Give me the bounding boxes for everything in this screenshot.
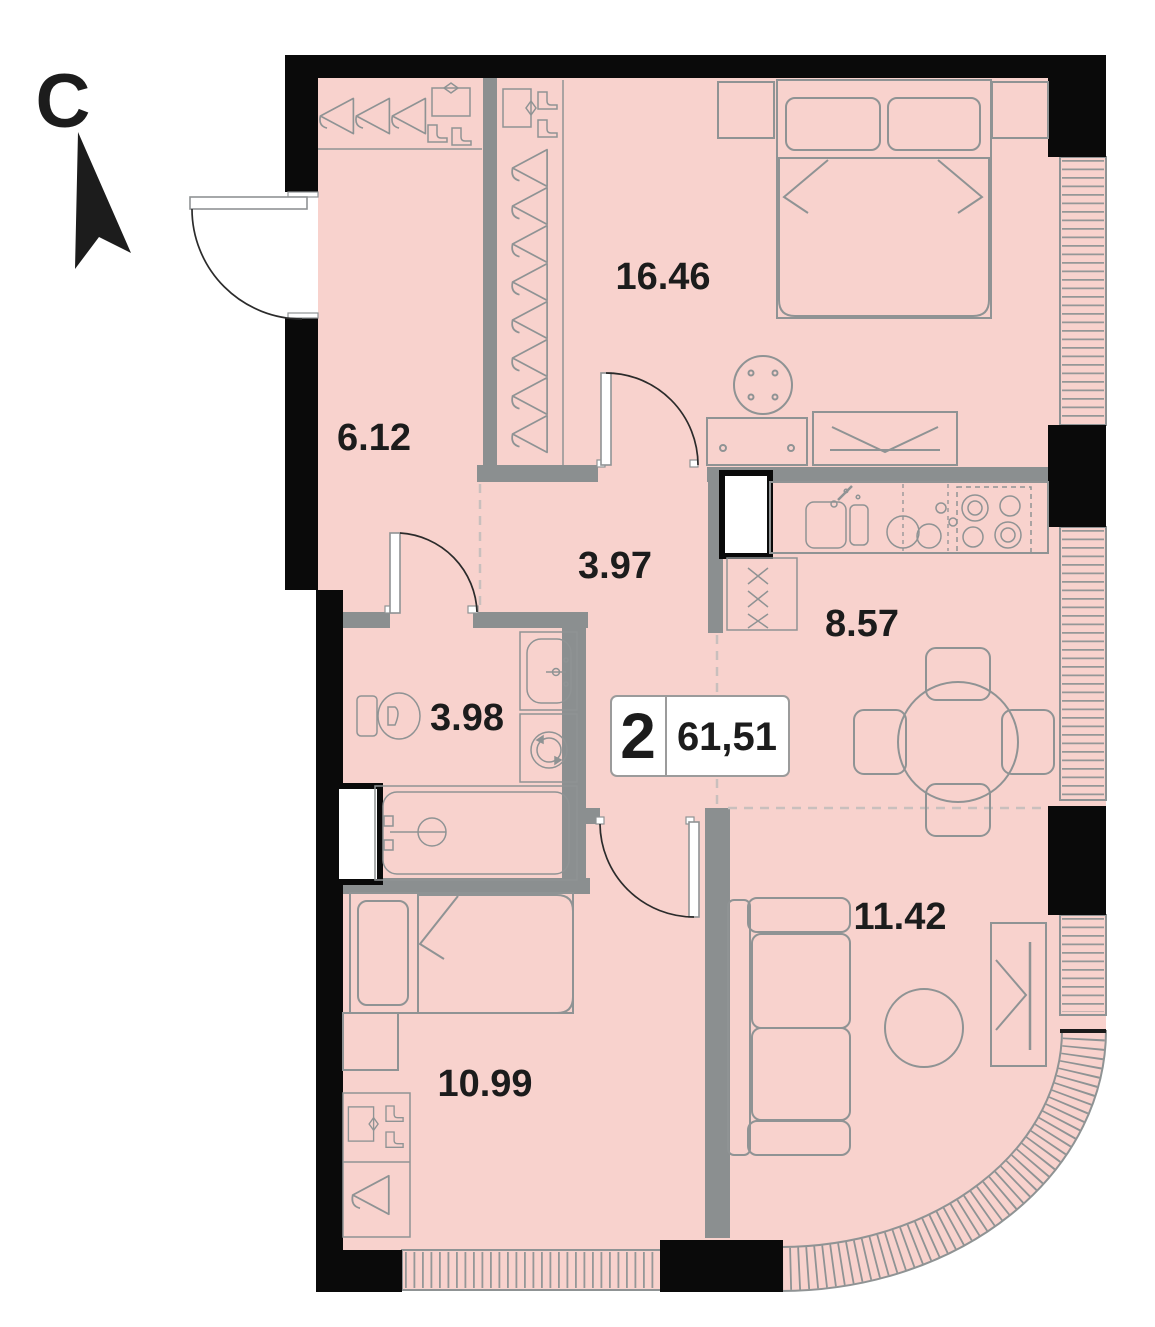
duct-shaft-bathroom-icon [336,786,380,882]
floor-plan-page: 16.46 6.12 3.97 8.57 3.98 11.42 10.99 2 … [0,0,1155,1327]
entrance-door [190,192,318,319]
room-label-bathroom: 3.98 [430,697,504,739]
room-label-corridor: 3.97 [578,545,652,587]
room-label-living: 11.42 [854,896,947,938]
north-arrow-icon [75,132,131,269]
room-label-bedroom-main: 16.46 [615,256,710,298]
compass: C [36,59,131,269]
room-label-kitchen: 8.57 [825,603,899,645]
apartment-badge: 2 61,51 [611,696,789,776]
room-label-hallway: 6.12 [337,417,411,459]
floor-plan: 16.46 6.12 3.97 8.57 3.98 11.42 10.99 2 … [0,0,1155,1327]
room-label-bedroom-second: 10.99 [437,1063,532,1105]
badge-rooms-count: 2 [620,700,656,772]
duct-shaft-kitchen-icon [722,473,770,556]
compass-letter: C [36,59,91,144]
badge-total-area: 61,51 [677,715,777,759]
